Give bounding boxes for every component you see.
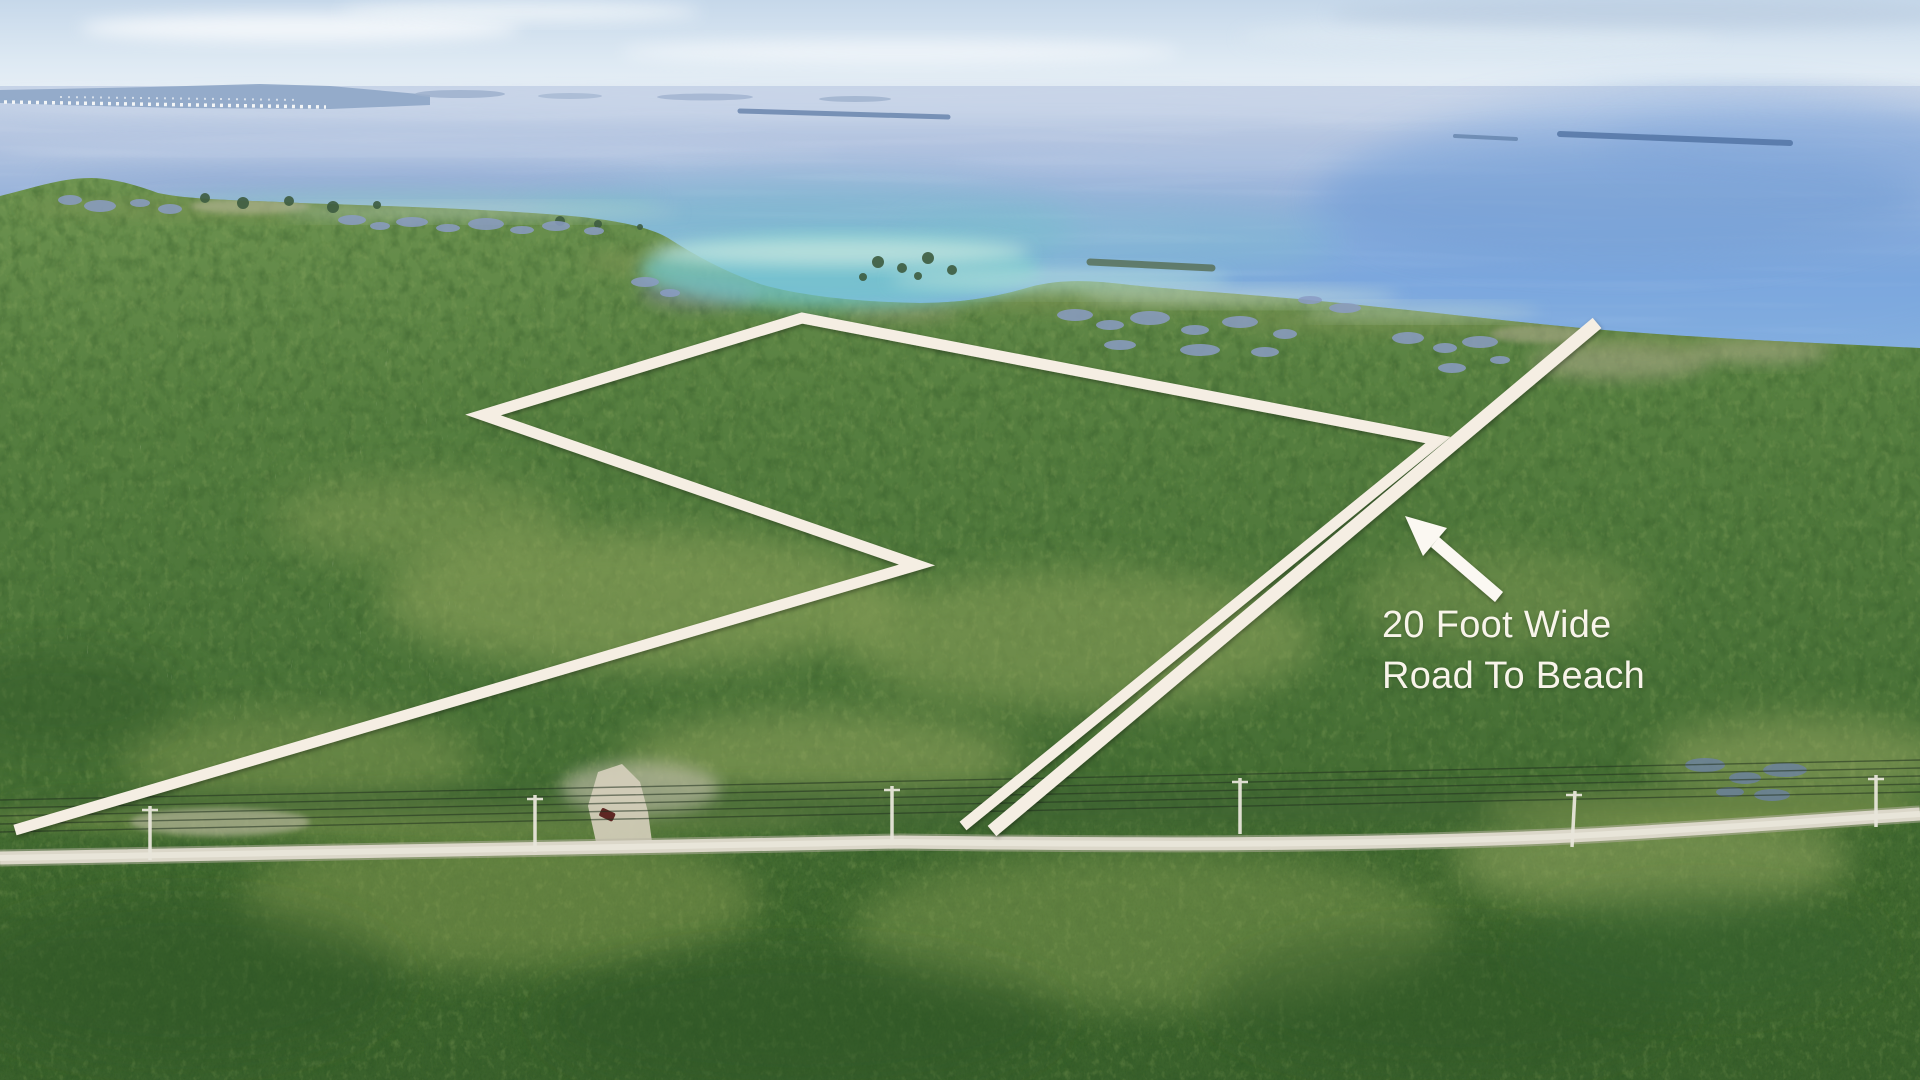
- aerial-photo-canvas: [0, 0, 1920, 1080]
- road-label-line2: Road To Beach: [1382, 651, 1645, 702]
- aerial-photo: 20 Foot Wide Road To Beach: [0, 0, 1920, 1080]
- road-label: 20 Foot Wide Road To Beach: [1382, 600, 1645, 702]
- road-label-line1: 20 Foot Wide: [1382, 600, 1645, 651]
